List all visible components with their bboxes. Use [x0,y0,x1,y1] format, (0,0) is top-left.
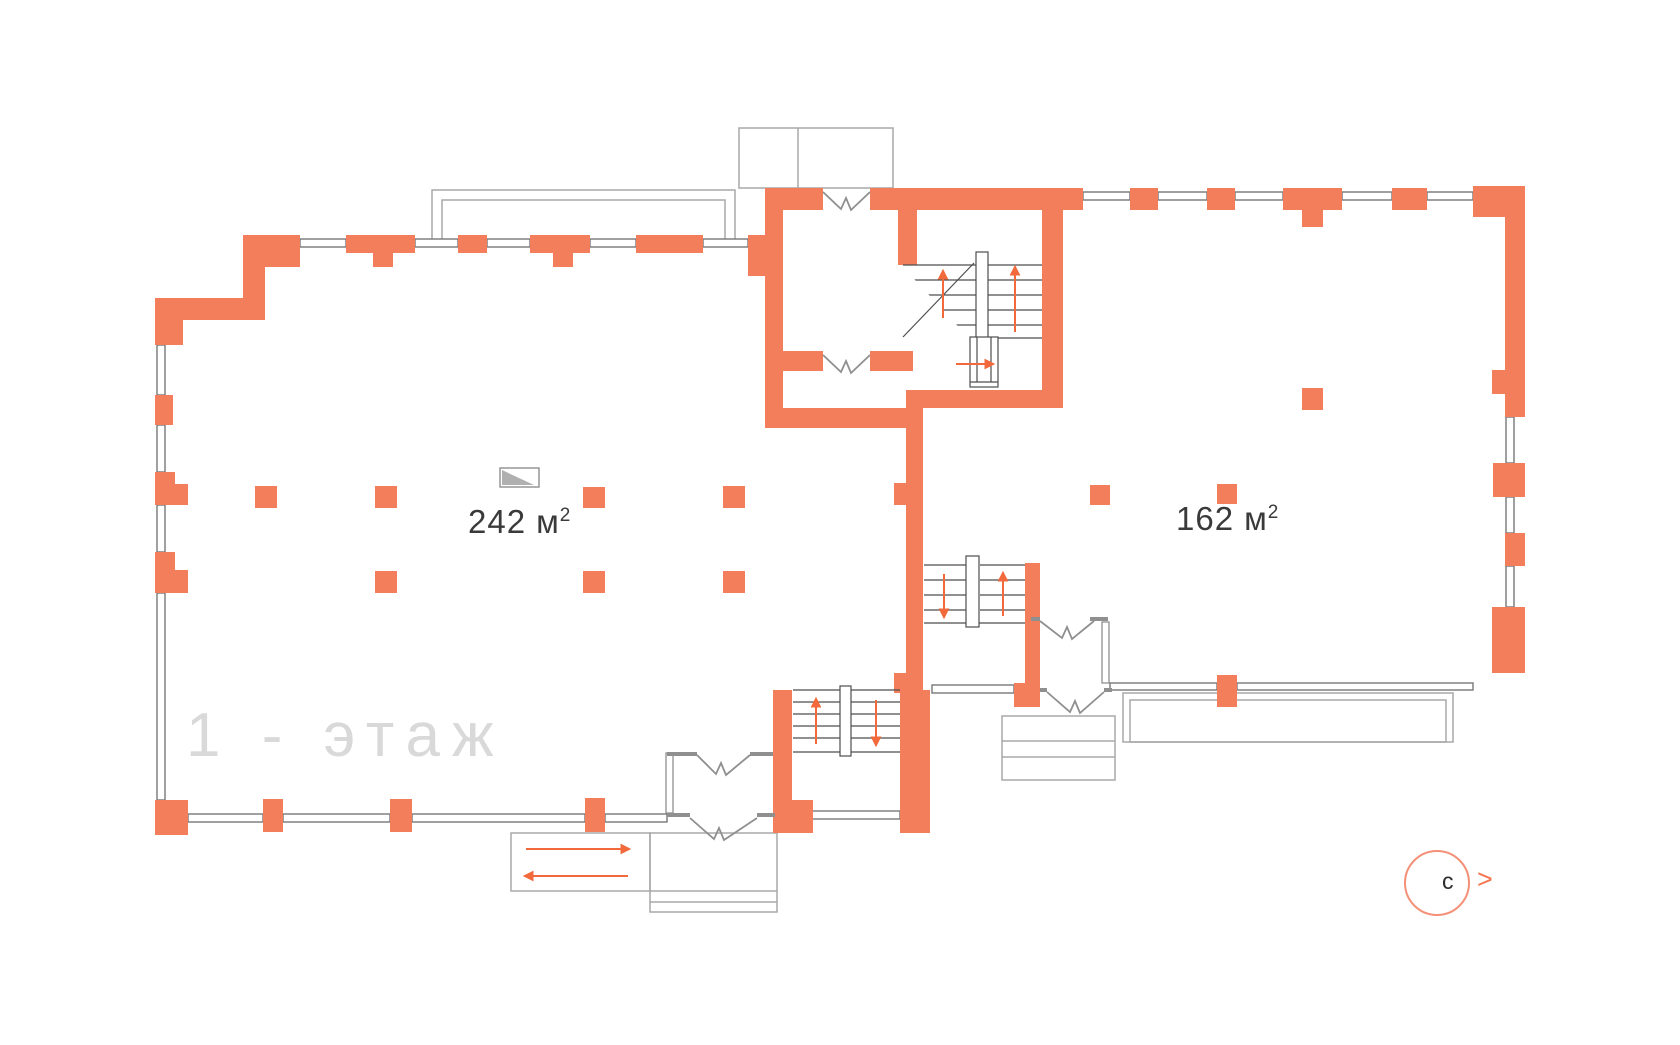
compass-chevron-icon: > [1477,864,1493,895]
staircase-lower [793,686,900,756]
ramp [511,833,650,891]
floor-plan-page: 242м2 162м2 1 - этаж с > [0,0,1680,1045]
area-sup: 2 [560,505,572,526]
vestibule-outer-door [823,192,870,210]
area-unit: м [536,503,560,540]
section-level-marker-icon [500,468,539,487]
entrance-canopy [739,128,893,188]
staircase-middle [924,556,1025,627]
area-value: 162 [1176,500,1234,537]
floor-title: 1 - этаж [186,700,506,771]
area-unit: м [1244,500,1268,537]
glass-partitions [666,622,1109,813]
area-label-left-hall: 242м2 [468,503,571,541]
secondary-exterior-door [1047,692,1104,713]
main-inner-door [697,755,750,775]
area-label-right-hall: 162м2 [1176,500,1279,538]
area-sup: 2 [1268,502,1280,523]
vestibule-inner-door [823,355,870,373]
main-exterior-door [690,818,757,840]
main-entrance-porch [650,833,777,912]
compass-north-letter: с [1442,868,1454,895]
staircase-upper [903,252,1042,387]
area-value: 242 [468,503,526,540]
terrace-bottom-right [1123,693,1453,742]
compass-north-icon [1404,850,1470,916]
secondary-entrance-porch [1002,716,1115,780]
secondary-inner-door [1040,621,1094,639]
